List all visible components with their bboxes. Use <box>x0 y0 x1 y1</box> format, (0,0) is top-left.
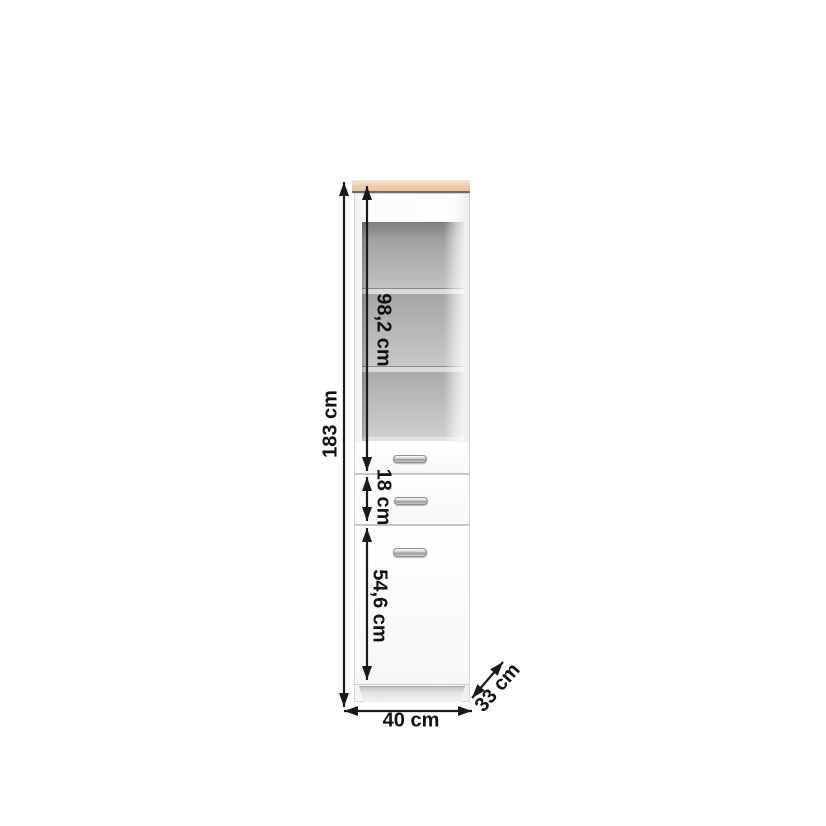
niche-bottom-board <box>362 437 464 441</box>
width-label: 40 cm <box>383 710 440 733</box>
drawer-handle-lower <box>394 497 428 505</box>
niche-compartment-bottom <box>362 372 464 437</box>
drawer-handle-upper <box>393 455 427 463</box>
product-dimension-diagram: 183 cm 98,2 cm 18 cm 54,6 cm 40 cm 33 cm <box>0 0 826 826</box>
total-height-label: 183 cm <box>320 390 343 458</box>
niche-compartment-top <box>362 222 464 288</box>
door-section-height-label: 54,6 cm <box>368 569 391 642</box>
depth-label: 33 cm <box>471 659 526 717</box>
cabinet-wood-top-panel <box>352 180 470 193</box>
door-handle <box>393 548 427 557</box>
plinth-base <box>359 686 465 702</box>
drawer-section-height-label: 18 cm <box>372 469 395 526</box>
niche-height-label: 98,2 cm <box>372 293 395 366</box>
